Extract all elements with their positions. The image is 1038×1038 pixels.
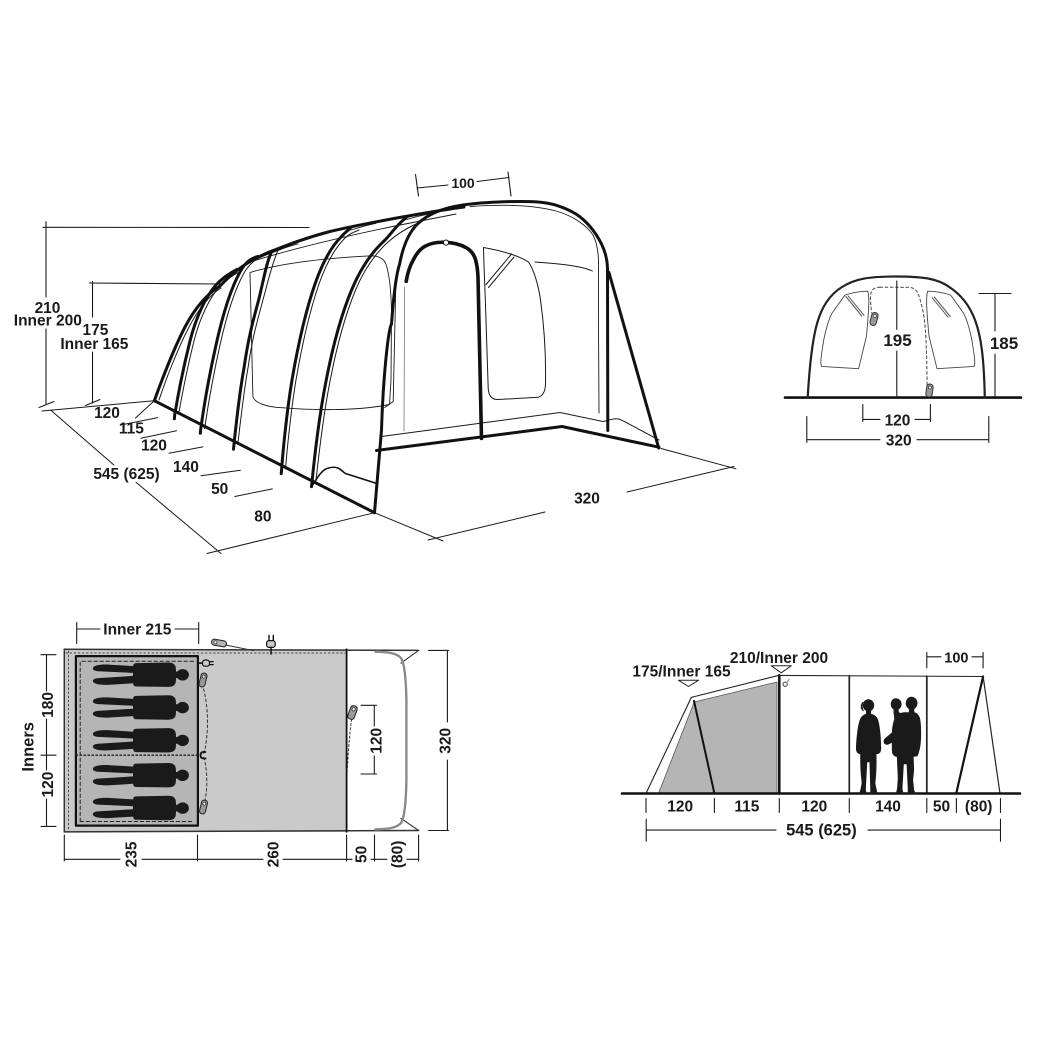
svg-text:120: 120: [801, 799, 827, 816]
svg-text:120: 120: [667, 799, 693, 816]
svg-text:320: 320: [574, 491, 600, 508]
svg-text:320: 320: [886, 433, 912, 450]
svg-text:140: 140: [173, 459, 199, 476]
svg-text:120: 120: [885, 413, 911, 430]
svg-text:(80): (80): [965, 799, 993, 816]
svg-text:50: 50: [354, 846, 371, 863]
svg-text:Inner 215: Inner 215: [103, 622, 171, 639]
svg-text:140: 140: [875, 799, 901, 816]
svg-text:100: 100: [944, 650, 968, 666]
svg-text:545 (625): 545 (625): [93, 466, 159, 483]
svg-text:320: 320: [438, 728, 455, 754]
svg-text:115: 115: [119, 421, 144, 438]
svg-text:545 (625): 545 (625): [786, 822, 857, 840]
svg-text:Inner 165: Inner 165: [60, 336, 128, 353]
svg-text:195: 195: [883, 331, 911, 350]
svg-text:(80): (80): [390, 841, 407, 869]
svg-text:260: 260: [266, 841, 283, 867]
svg-text:235: 235: [124, 841, 141, 867]
svg-text:50: 50: [933, 799, 950, 816]
svg-text:100: 100: [451, 175, 475, 191]
svg-text:120: 120: [141, 437, 167, 454]
svg-text:175/Inner 165: 175/Inner 165: [632, 664, 731, 681]
svg-text:210/Inner 200: 210/Inner 200: [730, 650, 828, 667]
svg-text:120: 120: [40, 772, 57, 798]
svg-text:120: 120: [369, 728, 386, 754]
svg-text:180: 180: [40, 692, 57, 718]
svg-text:115: 115: [734, 799, 759, 816]
svg-text:Inner 200: Inner 200: [14, 313, 82, 330]
svg-text:50: 50: [211, 481, 228, 498]
svg-text:120: 120: [94, 405, 120, 422]
svg-text:80: 80: [254, 508, 271, 525]
svg-text:185: 185: [990, 334, 1018, 353]
svg-text:Inners: Inners: [19, 722, 37, 772]
